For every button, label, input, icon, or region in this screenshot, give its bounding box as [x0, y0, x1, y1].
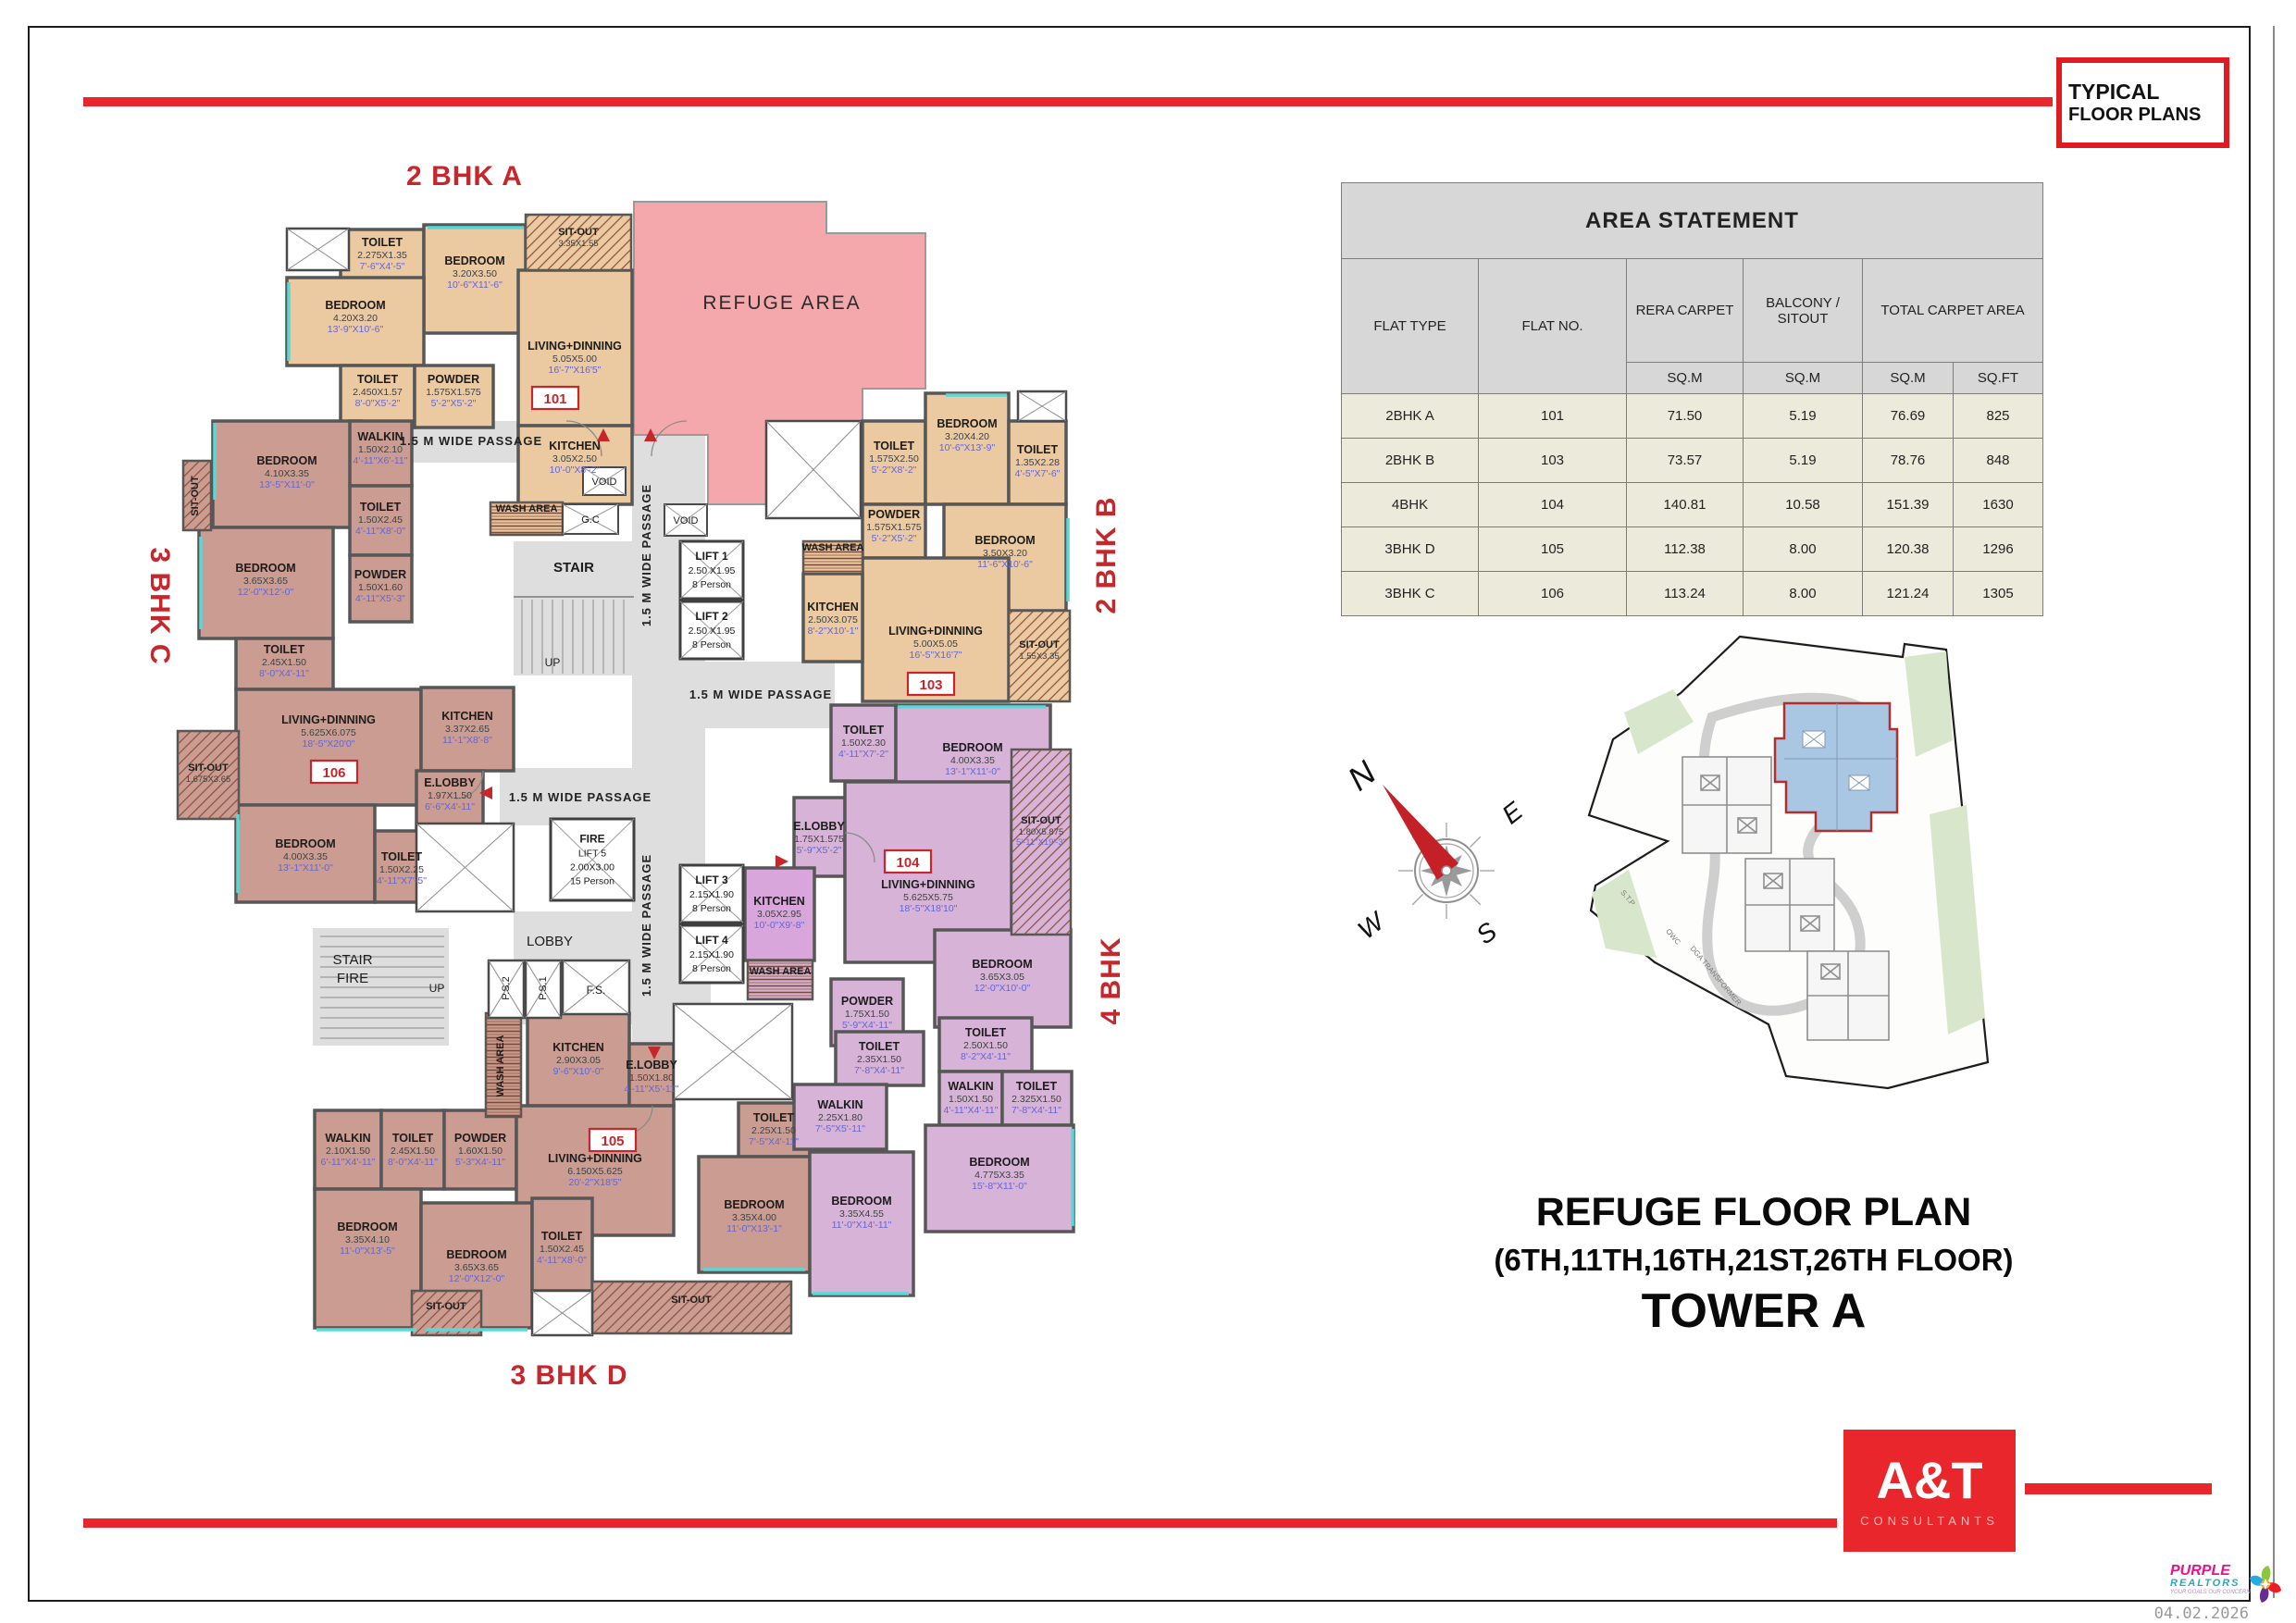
- room-dim-m: 2.45X1.50: [262, 657, 306, 668]
- lift-label: 8 Person: [692, 639, 731, 650]
- room-dim-m: 3.65X3.05: [980, 972, 1024, 983]
- room-dim-ft: 6'-11"X4'-11": [321, 1157, 376, 1168]
- passage-label: 1.5 M WIDE PASSAGE: [509, 790, 652, 804]
- plan-label: 3.35X1.55: [558, 239, 598, 249]
- room-name: TOILET: [392, 1132, 434, 1145]
- room-dim-m: 3.05X2.50: [552, 453, 597, 465]
- plan-title: REFUGE FLOOR PLAN: [1444, 1190, 2064, 1235]
- room-dim-m: 3.35X4.00: [732, 1212, 776, 1223]
- room-dim-ft: 13'-5"X11'-0": [259, 479, 315, 490]
- room-dim-m: 1.75X1.575: [794, 834, 844, 845]
- room-dim-ft: 10'-0"X8'-2": [550, 465, 601, 476]
- room-dim-m: 2.25X1.80: [818, 1112, 863, 1123]
- room-dim-ft: 13'-1"X11'-0": [945, 766, 1000, 777]
- room-dim-ft: 15'-8"X11'-0": [972, 1181, 1027, 1192]
- room-dim-ft: 5'-3"X4'-11": [455, 1157, 505, 1168]
- room-name: LIVING+DINNING: [527, 340, 622, 353]
- room-dim-m: 3.37X2.65: [445, 724, 490, 735]
- room-dim-ft: 8'-2"X4'-11": [961, 1051, 1011, 1062]
- room-name: TOILET: [362, 236, 403, 249]
- room-dim-ft: 7'-6"X4'-5": [360, 261, 405, 272]
- room-dim-m: 3.50X3.20: [983, 548, 1027, 559]
- core-label: P.S.2: [501, 976, 512, 1000]
- plan-label: 1.80X5.875: [1019, 827, 1064, 837]
- hatch-label: SIT-OUT: [1021, 815, 1061, 826]
- room-dim-m: 3.35X4.55: [839, 1208, 884, 1220]
- at-logo-sub: CONSULTANTS: [1860, 1514, 1999, 1528]
- room-name: BEDROOM: [325, 299, 385, 312]
- room-dim-m: 1.97X1.50: [428, 790, 472, 801]
- room-dim-ft: 5'-2"X5'-2": [431, 398, 477, 409]
- lift-label: 8 Person: [692, 963, 731, 974]
- room-name: TOILET: [753, 1111, 795, 1124]
- plan-label: 5'-11"X19'-3": [1016, 837, 1066, 848]
- room-dim-ft: 8'-0"X5'-2": [355, 398, 401, 409]
- flat-type-label: 2 BHK A: [406, 161, 523, 192]
- flat-type-label: 4 BHK: [1096, 936, 1126, 1024]
- room-dim-m: 1.575X1.575: [426, 387, 481, 398]
- room-name: WALKIN: [357, 430, 403, 443]
- room-dim-m: 4.20X3.20: [333, 313, 378, 324]
- hatch-label: WASH AREA: [802, 542, 864, 553]
- room-name: TOILET: [381, 850, 423, 863]
- room-name: WALKIN: [948, 1080, 993, 1093]
- core-label: STAIR: [553, 560, 594, 576]
- room-dim-m: 4.00X3.35: [950, 755, 995, 766]
- flat-number: 106: [322, 765, 345, 781]
- room-dim-m: 3.20X3.50: [453, 268, 497, 279]
- room-name: BEDROOM: [942, 741, 1002, 754]
- room-dim-ft: 18'-5"X20'0": [302, 738, 354, 750]
- room-dim-ft: 5'-9"X4'-11": [842, 1020, 892, 1031]
- room-dim-ft: 11'-6"X10'-6": [977, 559, 1033, 570]
- room-dim-ft: 5'-2"X5'-2": [872, 533, 917, 544]
- lift-label: LIFT 1: [695, 550, 728, 563]
- room-dim-m: 1.50X2.25: [379, 864, 424, 875]
- compass-letter-w: W: [1352, 906, 1391, 945]
- room-dim-ft: 4'-11"X4'-11": [944, 1105, 999, 1116]
- date-stamp: 04.02.2026: [2110, 1604, 2249, 1623]
- void-label: VOID: [592, 477, 617, 488]
- hatch-label: SIT-OUT: [1019, 639, 1060, 650]
- room-name: LIVING+DINNING: [888, 625, 983, 638]
- room-dim-ft: 4'-5"X7'-6": [1015, 468, 1061, 479]
- hatch-label: SIT-OUT: [188, 762, 229, 774]
- room-name: POWDER: [428, 373, 479, 386]
- room-dim-ft: 12'-0"X12'-0": [449, 1273, 505, 1284]
- void-label: VOID: [674, 515, 699, 527]
- room-bedroom: [315, 1189, 421, 1328]
- room-dim-ft: 7'-5"X4'-11": [749, 1136, 799, 1147]
- room-dim-ft: 12'-0"X10'-0": [974, 983, 1031, 994]
- purple-logo-star-icon: [2246, 1560, 2285, 1608]
- room-dim-ft: 4'-11"X5'-11": [625, 1084, 679, 1095]
- room-name: TOILET: [541, 1230, 583, 1243]
- hatch-label: SIT-OUT: [190, 476, 201, 516]
- room-dim-ft: 11'-1"X8'-8": [442, 735, 492, 746]
- room-dim-ft: 4'-11"X6'-11": [354, 455, 408, 466]
- room-dim-ft: 8'-0"X4'-11": [388, 1157, 438, 1168]
- room-name: BEDROOM: [974, 534, 1035, 547]
- plan-floors: (6TH,11TH,16TH,21ST,26TH FLOOR): [1444, 1243, 2064, 1278]
- at-logo-text: A&T: [1876, 1455, 1982, 1506]
- passage-label: 1.5 M WIDE PASSAGE: [639, 854, 653, 997]
- room-name: KITCHEN: [549, 440, 601, 452]
- room-dim-m: 1.60X1.50: [458, 1146, 503, 1157]
- room-dim-ft: 6'-6"X4'-11": [425, 801, 475, 812]
- room-dim-m: 4.00X3.35: [283, 851, 328, 862]
- room-name: WALKIN: [817, 1098, 863, 1111]
- room-dim-m: 2.50X1.50: [963, 1040, 1008, 1051]
- room-dim-m: 3.65X3.65: [243, 576, 288, 587]
- flat-type-label: 3 BHK D: [510, 1360, 627, 1391]
- lift-label: 15 Person: [570, 876, 614, 887]
- room-dim-ft: 11'-0"X14'-11": [832, 1220, 892, 1231]
- compass-letter-e: E: [1496, 796, 1528, 829]
- room-dim-ft: 4'-11"X8'-0": [355, 526, 405, 537]
- room-dim-ft: 7'-8"X4'-11": [854, 1065, 904, 1076]
- room-dim-ft: 4'-11"X8'-0": [537, 1255, 587, 1266]
- title-block: REFUGE FLOOR PLAN (6TH,11TH,16TH,21ST,26…: [1444, 1190, 2064, 1339]
- hatch-label: WASH AREA: [750, 966, 812, 977]
- flat-number: 104: [896, 855, 920, 871]
- room-dim-m: 1.50X2.45: [540, 1244, 584, 1255]
- room-name: TOILET: [874, 440, 915, 452]
- core-label: F.S.: [587, 984, 606, 997]
- compass-letter-n: N: [1340, 752, 1384, 798]
- tower-name: TOWER A: [1444, 1283, 2064, 1339]
- room-name: BEDROOM: [831, 1195, 891, 1208]
- room-dim-ft: 20'-2"X18'5": [568, 1177, 621, 1188]
- room-name: E.LOBBY: [626, 1059, 677, 1072]
- room-name: TOILET: [1016, 1080, 1058, 1093]
- room-name: KITCHEN: [807, 601, 859, 613]
- room-name: WALKIN: [325, 1132, 370, 1145]
- room-name: TOILET: [1017, 443, 1059, 456]
- lift-label: LIFT 3: [695, 873, 728, 886]
- flat-number: 105: [601, 1134, 624, 1149]
- room-dim-ft: 16'-5"X16'7": [909, 650, 962, 661]
- plan-label: 1.55X3.35: [1019, 651, 1059, 662]
- room-name: E.LOBBY: [793, 820, 845, 833]
- room-dim-m: 1.50X1.50: [949, 1094, 993, 1105]
- site-key-plan: S.T.POWCDGA TRANSFORMER: [1589, 637, 1988, 1088]
- room-dim-ft: 8'-2"X10'-1": [808, 626, 859, 637]
- room-dim-ft: 7'-5"X5'-11": [815, 1123, 865, 1134]
- room-dim-m: 2.35X1.50: [857, 1054, 901, 1065]
- passage-label: 1.5 M WIDE PASSAGE: [639, 484, 653, 626]
- lift-label: 2.00X3.00: [570, 862, 614, 873]
- room-dim-m: 1.575X1.575: [866, 522, 922, 533]
- lift-label: FIRE: [579, 833, 604, 846]
- room-dim-ft: 10'-6"X13'-9": [939, 442, 996, 453]
- room-dim-ft: 5'-9"X5'-2": [797, 845, 842, 856]
- room-name: TOILET: [843, 724, 885, 737]
- room-dim-m: 1.50X2.45: [358, 514, 403, 526]
- room-dim-ft: 13'-1"X11'-0": [278, 862, 333, 873]
- core-label: UP: [429, 982, 445, 995]
- room-name: TOILET: [357, 373, 399, 386]
- sheet: TYPICAL FLOOR PLANS AREA STATEMENT FLAT …: [0, 0, 2296, 1623]
- room-name: KITCHEN: [441, 710, 493, 723]
- hatch-label: WASH AREA: [495, 1035, 506, 1097]
- room-name: LIVING+DINNING: [281, 713, 376, 726]
- core-label: P.S.1: [538, 976, 549, 1000]
- void-label: G.C: [581, 514, 600, 526]
- logo-red-line: [2025, 1483, 2212, 1494]
- room-name: POWDER: [868, 508, 920, 521]
- lift-label: LIFT 5: [578, 849, 606, 860]
- room-dim-m: 5.00X5.05: [913, 638, 958, 650]
- room-dim-m: 3.05X2.95: [757, 909, 801, 920]
- lift-label: LIFT 4: [695, 934, 728, 947]
- room-name: BEDROOM: [972, 958, 1032, 971]
- room-dim-m: 5.05X5.00: [552, 353, 597, 365]
- room-name: TOILET: [360, 501, 402, 514]
- room-dim-m: 2.50X3.075: [808, 614, 858, 626]
- room-dim-ft: 4'-11"X7'-2": [838, 749, 888, 760]
- room-name: BEDROOM: [724, 1198, 784, 1211]
- room-dim-ft: 10'-6"X11'-6": [447, 279, 503, 291]
- room-dim-m: 6.150X5.625: [567, 1166, 623, 1177]
- room-dim-m: 1.50X1.80: [629, 1072, 674, 1084]
- compass-rose: NEWS: [1340, 752, 1528, 949]
- room-name: LIVING+DINNING: [881, 878, 975, 891]
- room-dim-m: 2.450X1.57: [353, 387, 403, 398]
- lift-label: 2.50 X1.95: [689, 565, 736, 576]
- room-dim-m: 2.325X1.50: [1011, 1094, 1061, 1105]
- room-dim-ft: 13'-9"X10'-6": [328, 324, 384, 335]
- flat-type-label: 2 BHK B: [1091, 496, 1122, 613]
- room-name: E.LOBBY: [424, 776, 476, 789]
- room-dim-ft: 5'-2"X8'-2": [872, 465, 917, 476]
- room-dim-ft: 4'-11"X5'-3": [355, 593, 405, 604]
- room-dim-m: 4.775X3.35: [974, 1170, 1024, 1181]
- room-dim-m: 1.50X2.30: [841, 737, 886, 749]
- room-dim-m: 3.65X3.65: [454, 1262, 499, 1273]
- room-name: BEDROOM: [275, 837, 335, 850]
- refuge-area-label: REFUGE AREA: [702, 292, 861, 314]
- room-dim-m: 4.10X3.35: [265, 468, 309, 479]
- room-name: BEDROOM: [969, 1156, 1029, 1169]
- room-dim-m: 5.625X6.075: [301, 727, 356, 738]
- room-name: BEDROOM: [235, 562, 295, 575]
- hatch-pattern: [592, 1282, 791, 1333]
- hatch-label: SIT-OUT: [558, 227, 599, 238]
- core-label: UP: [545, 656, 561, 669]
- room-dim-m: 1.575X2.50: [869, 453, 919, 465]
- room-name: BEDROOM: [444, 254, 504, 267]
- room-dim-ft: 12'-0"X12'-0": [238, 587, 294, 598]
- room-dim-ft: 7'-8"X4'-11": [1011, 1105, 1061, 1116]
- room-dim-m: 3.35X4.10: [345, 1234, 390, 1245]
- room-dim-ft: 4'-11"X7'-5": [377, 875, 427, 886]
- at-consultants-logo: A&T CONSULTANTS: [1843, 1430, 2016, 1552]
- passage-label: 1.5 M WIDE PASSAGE: [400, 434, 542, 448]
- lift-label: 2.50 X1.95: [689, 626, 736, 637]
- room-name: LIVING+DINNING: [548, 1152, 642, 1165]
- room-dim-m: 5.625X5.75: [903, 892, 953, 903]
- core-label: STAIR: [332, 952, 372, 968]
- lift-label: 2.15X1.90: [689, 889, 734, 900]
- room-name: KITCHEN: [753, 895, 805, 908]
- lift-label: 8 Person: [692, 579, 731, 590]
- room-name: TOILET: [264, 643, 305, 656]
- room-dim-m: 2.45X1.50: [391, 1146, 435, 1157]
- room-dim-m: 3.20X4.20: [945, 431, 989, 442]
- room-name: TOILET: [965, 1026, 1007, 1039]
- room-name: POWDER: [354, 568, 406, 581]
- room-dim-ft: 18'-5"X18'10": [900, 903, 958, 914]
- room-dim-ft: 11'-0"X13'-5": [340, 1245, 395, 1257]
- hatch-label: SIT-OUT: [671, 1295, 712, 1306]
- compass-spoke: [1470, 894, 1480, 904]
- floor-plan-drawing: REFUGE AREATOILET2.275X1.357'-6"X4'-5"BE…: [0, 0, 2296, 1623]
- room-dim-m: 2.275X1.35: [357, 250, 407, 261]
- entry-arrow-icon: [776, 855, 788, 868]
- flat-type-label: 3 BHK C: [144, 547, 175, 664]
- room-dim-m: 1.35X2.28: [1015, 457, 1060, 468]
- room-name: POWDER: [841, 995, 893, 1008]
- room-name: KITCHEN: [552, 1041, 604, 1054]
- room-dim-ft: 11'-0"X13'-1": [726, 1223, 782, 1234]
- compass-letter-s: S: [1471, 916, 1502, 949]
- lift-label: LIFT 2: [695, 610, 728, 623]
- flat-number: 103: [919, 677, 942, 693]
- room-dim-ft: 16'-7"X16'5": [548, 365, 601, 376]
- room-dim-m: 1.50X2.10: [358, 444, 403, 455]
- core-label: FIRE: [337, 971, 368, 986]
- room-name: POWDER: [454, 1132, 506, 1145]
- lift-label: 2.15X1.90: [689, 949, 734, 960]
- core-label: LOBBY: [527, 934, 573, 949]
- room-name: BEDROOM: [937, 417, 997, 430]
- room-dim-ft: 10'-0"X9'-8": [754, 920, 805, 931]
- plan-label: 1.675X3.65: [186, 774, 231, 785]
- room-dim-m: 1.50X1.60: [358, 582, 403, 593]
- passage-label: 1.5 M WIDE PASSAGE: [689, 688, 832, 701]
- room-dim-m: 2.90X3.05: [556, 1055, 601, 1066]
- room-dim-m: 1.75X1.50: [845, 1009, 889, 1020]
- room-dim-ft: 9'-6"X10'-0": [553, 1066, 604, 1077]
- room-dim-m: 2.25X1.50: [751, 1125, 796, 1136]
- room-name: BEDROOM: [446, 1248, 506, 1261]
- lift-label: 8 Person: [692, 903, 731, 914]
- compass-spoke: [1470, 836, 1480, 847]
- room-name: BEDROOM: [337, 1220, 397, 1233]
- room-name: TOILET: [859, 1040, 900, 1053]
- hatch-label: SIT-OUT: [426, 1301, 466, 1312]
- room-dim-m: 2.10X1.50: [326, 1146, 370, 1157]
- room-name: BEDROOM: [256, 454, 316, 467]
- flat-number: 101: [543, 391, 566, 407]
- room-dim-ft: 8'-0"X4'-11": [259, 668, 309, 679]
- hatch-label: WASH AREA: [496, 503, 558, 514]
- compass-spoke: [1412, 894, 1422, 904]
- site-tower-a-highlight: [1775, 703, 1897, 831]
